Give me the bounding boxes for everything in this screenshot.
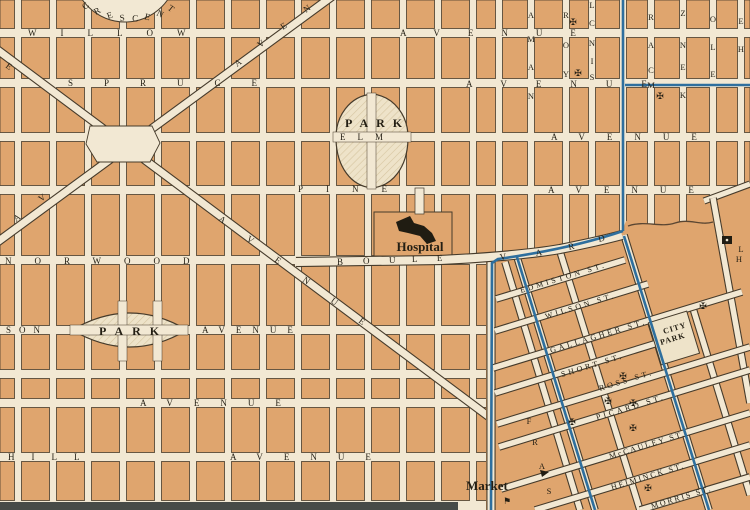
avenue-row3-label: AVENUE bbox=[551, 132, 719, 142]
church-cross-icon: ✠ bbox=[574, 69, 582, 79]
city-block bbox=[57, 408, 85, 453]
avenue-row4-label: AVENUE bbox=[548, 185, 716, 195]
city-block bbox=[0, 335, 15, 370]
city-block bbox=[337, 195, 365, 256]
nama-street-letters: A bbox=[528, 10, 535, 20]
church-cross-icon: ✠ bbox=[568, 418, 576, 428]
city-block bbox=[92, 195, 120, 256]
city-block bbox=[162, 408, 190, 453]
city-block bbox=[627, 0, 648, 29]
city-block bbox=[197, 335, 225, 370]
city-block bbox=[407, 0, 435, 29]
city-block bbox=[0, 462, 15, 501]
city-block bbox=[197, 142, 225, 186]
city-block bbox=[372, 462, 400, 501]
city-block bbox=[92, 462, 120, 501]
city-block bbox=[127, 195, 155, 256]
city-block bbox=[337, 0, 365, 29]
fraser-street-letters: R bbox=[532, 437, 538, 447]
church-cross-icon: ✠ bbox=[629, 399, 637, 409]
boulevard-letter: E bbox=[437, 253, 444, 263]
church-cross-icon: ✠ bbox=[644, 484, 652, 494]
city-block bbox=[717, 0, 738, 29]
city-block bbox=[232, 379, 260, 399]
city-block bbox=[570, 88, 589, 133]
boulevard-letter: U bbox=[389, 255, 396, 265]
city-block bbox=[442, 265, 470, 326]
city-block bbox=[22, 462, 50, 501]
street-stub bbox=[415, 188, 424, 214]
city-block bbox=[745, 38, 750, 79]
park-west-label: PARK bbox=[99, 324, 168, 338]
city-block bbox=[0, 265, 15, 326]
city-block bbox=[407, 38, 435, 79]
city-block bbox=[503, 142, 528, 186]
city-block bbox=[627, 38, 648, 79]
boulevard-letter: O bbox=[363, 256, 370, 266]
city-block bbox=[0, 88, 15, 133]
city-block bbox=[267, 462, 295, 501]
city-block bbox=[372, 379, 400, 399]
map-image: WILLOWSPRUCEAVENUEAVENUEAVENUEAVENUEELMP… bbox=[0, 0, 750, 510]
city-block bbox=[232, 0, 260, 29]
city-block bbox=[127, 462, 155, 501]
city-block bbox=[687, 88, 710, 133]
avenue-row1-label: AVENUE bbox=[400, 28, 604, 38]
city-block bbox=[162, 265, 190, 326]
city-block bbox=[267, 195, 295, 256]
city-block bbox=[22, 379, 50, 399]
city-block bbox=[407, 142, 435, 186]
city-block bbox=[407, 265, 435, 326]
city-block bbox=[337, 379, 365, 399]
city-block bbox=[407, 88, 435, 133]
boulevard-letter: L bbox=[412, 254, 418, 264]
city-block bbox=[162, 195, 190, 256]
city-block bbox=[535, 0, 563, 29]
city-block bbox=[407, 408, 435, 453]
city-block bbox=[92, 38, 120, 79]
sinclair-street-letters: S bbox=[590, 72, 595, 82]
city-block bbox=[267, 408, 295, 453]
city-block bbox=[57, 462, 85, 501]
city-block bbox=[57, 335, 85, 370]
city-block bbox=[717, 142, 738, 186]
kenzie-street-letters: K bbox=[680, 90, 687, 100]
spruce-street-label: SPRUCE bbox=[68, 78, 288, 88]
city-block bbox=[627, 142, 648, 186]
city-block bbox=[503, 0, 528, 29]
city-block bbox=[57, 265, 85, 326]
sinclair-street-letters: I bbox=[591, 56, 594, 66]
city-block bbox=[745, 88, 750, 133]
city-block bbox=[477, 142, 496, 186]
city-block bbox=[197, 0, 225, 29]
crescent-street-letter: C bbox=[132, 13, 139, 23]
city-block bbox=[197, 379, 225, 399]
city-block bbox=[127, 379, 155, 399]
map-edge-band bbox=[0, 502, 458, 510]
city-block bbox=[596, 38, 620, 79]
edge-letters: H bbox=[736, 254, 742, 264]
church-cross-icon: ✠ bbox=[604, 397, 612, 407]
pine-street-label: PINE bbox=[298, 184, 410, 194]
city-block bbox=[477, 0, 496, 29]
hospital-label: Hospital bbox=[397, 239, 444, 254]
city-block bbox=[503, 88, 528, 133]
city-block bbox=[22, 142, 50, 186]
city-block bbox=[442, 0, 470, 29]
avenue-row2-label: AVENUE bbox=[466, 79, 676, 89]
city-block bbox=[302, 195, 330, 256]
city-block bbox=[0, 0, 15, 29]
city-block bbox=[687, 38, 710, 79]
city-block bbox=[22, 0, 50, 29]
city-block bbox=[337, 408, 365, 453]
city-block bbox=[372, 0, 400, 29]
son-street-label: SON bbox=[6, 325, 48, 335]
mcar-street-letters: C bbox=[648, 65, 654, 75]
city-block bbox=[442, 335, 470, 370]
city-block bbox=[535, 142, 563, 186]
city-block bbox=[655, 38, 680, 79]
church-cross-icon: ✠ bbox=[656, 92, 664, 102]
city-block bbox=[337, 462, 365, 501]
city-block bbox=[687, 142, 710, 186]
city-block bbox=[717, 88, 738, 133]
city-block bbox=[372, 408, 400, 453]
city-block bbox=[232, 142, 260, 186]
city-block bbox=[232, 408, 260, 453]
city-block bbox=[162, 462, 190, 501]
city-block bbox=[232, 335, 260, 370]
city-block bbox=[92, 408, 120, 453]
city-block bbox=[0, 142, 15, 186]
city-block bbox=[0, 195, 15, 256]
edge-letters: L bbox=[738, 244, 743, 254]
city-block bbox=[22, 408, 50, 453]
city-block bbox=[232, 88, 260, 133]
city-block bbox=[267, 142, 295, 186]
city-block bbox=[535, 38, 563, 79]
avenue-row6-label: AVENUE bbox=[140, 398, 302, 408]
city-block bbox=[22, 88, 50, 133]
city-block bbox=[267, 379, 295, 399]
city-block bbox=[503, 38, 528, 79]
city-block bbox=[477, 195, 496, 256]
avenue-park-row-label: AVENUE bbox=[202, 325, 304, 335]
city-block bbox=[197, 408, 225, 453]
city-block bbox=[655, 0, 680, 29]
city-block bbox=[627, 88, 648, 133]
city-block bbox=[655, 142, 680, 186]
nama-street-letters: N bbox=[528, 91, 534, 101]
sinclair-street-letters: C bbox=[589, 18, 595, 28]
map-canvas: WILLOWSPRUCEAVENUEAVENUEAVENUEAVENUEELMP… bbox=[0, 0, 750, 510]
city-block bbox=[267, 335, 295, 370]
city-block bbox=[92, 379, 120, 399]
city-block bbox=[407, 462, 435, 501]
city-block bbox=[302, 462, 330, 501]
city-block bbox=[302, 88, 330, 133]
city-block bbox=[197, 38, 225, 79]
york-street-letters: O bbox=[563, 40, 569, 50]
kenzie-street-letters: E bbox=[680, 62, 685, 72]
church-cross-icon: ✠ bbox=[569, 18, 577, 28]
city-block bbox=[596, 0, 620, 29]
market-flag-icon: ⚑ bbox=[503, 497, 511, 507]
city-block bbox=[442, 142, 470, 186]
ole-street-letters: E bbox=[710, 69, 715, 79]
city-block bbox=[57, 379, 85, 399]
hill-street-label: HILL bbox=[8, 452, 97, 462]
city-block bbox=[267, 88, 295, 133]
church-cross-icon: ✠ bbox=[699, 302, 707, 312]
nama-street-letters: M bbox=[527, 34, 535, 44]
kenzie-street-letters: N bbox=[680, 40, 686, 50]
city-block bbox=[162, 379, 190, 399]
city-block bbox=[745, 142, 750, 186]
city-block bbox=[197, 265, 225, 326]
city-block bbox=[442, 38, 470, 79]
city-block bbox=[127, 408, 155, 453]
kenzie-street-letters: Z bbox=[680, 8, 685, 18]
city-block bbox=[596, 142, 620, 186]
city-block bbox=[337, 335, 365, 370]
city-block bbox=[22, 265, 50, 326]
city-block bbox=[717, 38, 738, 79]
he-street-letters: H bbox=[738, 44, 744, 54]
city-block bbox=[302, 408, 330, 453]
city-block bbox=[407, 379, 435, 399]
city-block bbox=[745, 0, 750, 29]
city-block bbox=[442, 88, 470, 133]
city-block bbox=[302, 335, 330, 370]
city-block bbox=[232, 265, 260, 326]
fraser-street-letters: A bbox=[539, 461, 546, 471]
ole-street-letters: L bbox=[710, 42, 715, 52]
ole-street-letters: O bbox=[710, 14, 716, 24]
nama-street-letters: A bbox=[528, 62, 535, 72]
city-block bbox=[0, 379, 15, 399]
church-cross-icon: ✠ bbox=[619, 372, 627, 382]
park-elm-label: PARK bbox=[345, 116, 410, 130]
city-block bbox=[503, 195, 528, 256]
city-block bbox=[302, 379, 330, 399]
sinclair-street-letters: L bbox=[589, 0, 594, 10]
city-block bbox=[477, 38, 496, 79]
small-building-court bbox=[726, 239, 729, 242]
mcar-street-letters: A bbox=[648, 40, 655, 50]
city-block bbox=[57, 195, 85, 256]
city-block bbox=[477, 88, 496, 133]
he-street-letters: E bbox=[738, 16, 743, 26]
city-block bbox=[302, 142, 330, 186]
avenue-row7-label: AVENUE bbox=[230, 452, 392, 462]
city-block bbox=[197, 462, 225, 501]
city-block bbox=[232, 462, 260, 501]
elm-street-label: ELM bbox=[340, 132, 395, 142]
city-block bbox=[0, 408, 15, 453]
sinclair-street-letters: N bbox=[589, 38, 595, 48]
city-block bbox=[442, 408, 470, 453]
city-block bbox=[372, 38, 400, 79]
city-block bbox=[687, 0, 710, 29]
city-block bbox=[127, 38, 155, 79]
city-block bbox=[162, 38, 190, 79]
willow-street-label: WILLOW bbox=[28, 28, 209, 38]
city-block bbox=[372, 265, 400, 326]
york-street-letters: Y bbox=[563, 69, 569, 79]
mcar-street-letters: M bbox=[647, 80, 655, 90]
city-block bbox=[535, 88, 563, 133]
city-block bbox=[570, 142, 589, 186]
market-label: Market bbox=[466, 478, 509, 493]
fraser-street-letters: F bbox=[527, 416, 532, 426]
city-block bbox=[57, 38, 85, 79]
city-block bbox=[337, 38, 365, 79]
fraser-street-letters: S bbox=[547, 486, 552, 496]
city-block bbox=[596, 88, 620, 133]
boulevard-letter: B bbox=[337, 257, 343, 267]
mcar-street-letters: R bbox=[648, 12, 654, 22]
plaza bbox=[86, 126, 160, 162]
church-cross-icon: ✠ bbox=[629, 424, 637, 434]
city-block bbox=[22, 335, 50, 370]
norwood-street-label: NORWOOD bbox=[5, 256, 213, 266]
city-block bbox=[302, 38, 330, 79]
